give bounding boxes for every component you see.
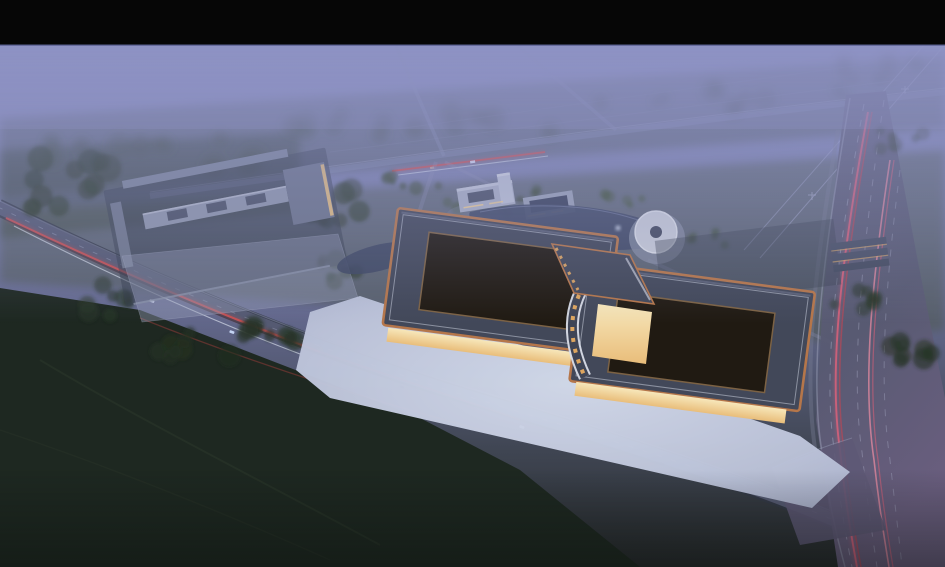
rendering-viewport	[0, 0, 945, 567]
aerial-rendering	[0, 0, 945, 567]
letterbox-bar	[0, 0, 945, 46]
bottom-vignette	[0, 470, 945, 567]
fog-overlay	[0, 44, 945, 324]
